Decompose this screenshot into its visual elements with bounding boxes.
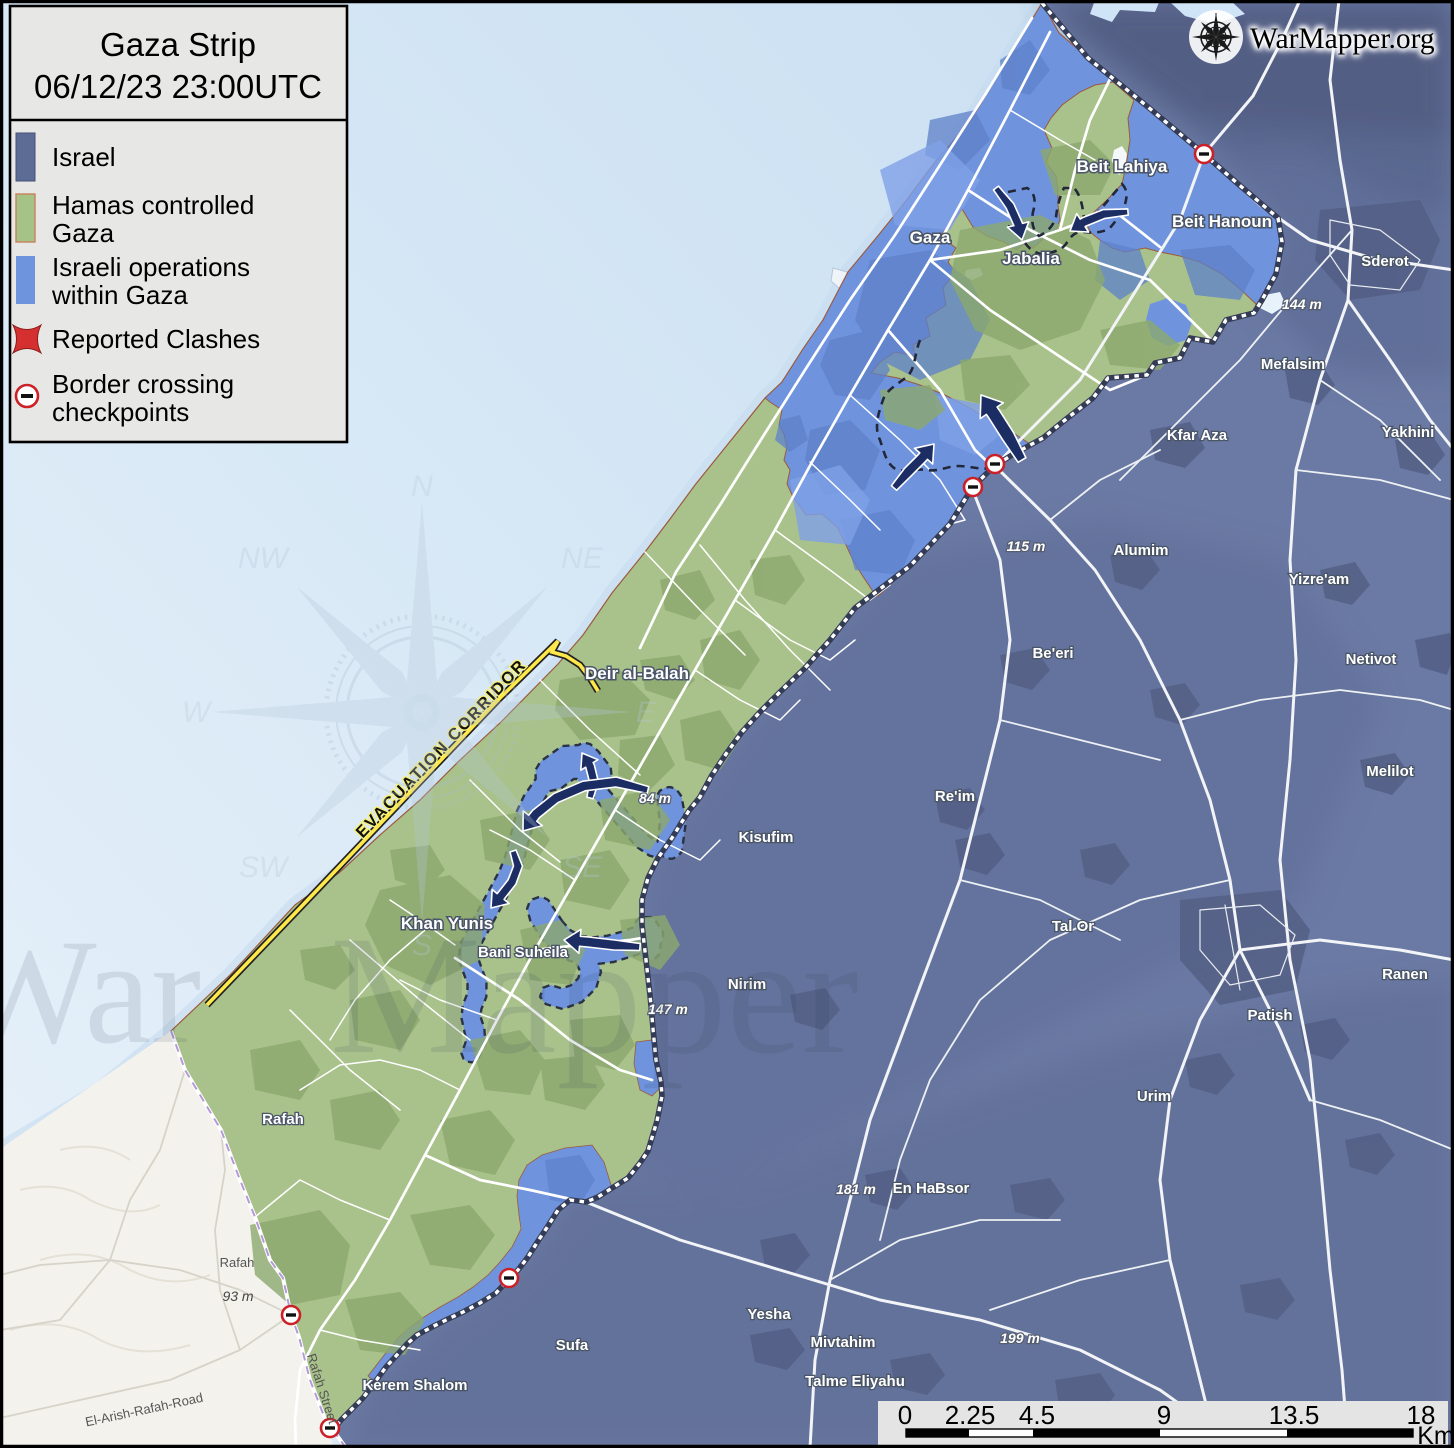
svg-text:Jabalia: Jabalia <box>1002 249 1060 268</box>
svg-text:4.5: 4.5 <box>1019 1400 1055 1430</box>
svg-text:NW: NW <box>238 542 291 575</box>
svg-text:checkpoints: checkpoints <box>52 397 189 427</box>
svg-text:199 m: 199 m <box>1000 1330 1040 1346</box>
svg-text:Gaza: Gaza <box>910 228 951 247</box>
svg-text:Km: Km <box>1417 1422 1454 1448</box>
svg-text:Yakhini: Yakhini <box>1382 424 1435 441</box>
svg-text:Hamas controlled: Hamas controlled <box>52 190 254 220</box>
svg-text:2.25: 2.25 <box>945 1400 996 1430</box>
svg-text:Israeli operations: Israeli operations <box>52 252 250 282</box>
svg-text:W: W <box>182 696 213 729</box>
svg-text:Yizre'am: Yizre'am <box>1289 571 1350 588</box>
svg-text:NE: NE <box>561 542 604 575</box>
svg-text:Ranen: Ranen <box>1382 966 1428 983</box>
svg-text:SW: SW <box>239 851 290 884</box>
svg-text:Deir al-Balah: Deir al-Balah <box>585 664 689 683</box>
svg-text:Netivot: Netivot <box>1346 651 1397 668</box>
svg-text:Gaza Strip: Gaza Strip <box>100 26 256 63</box>
svg-text:Border crossing: Border crossing <box>52 369 234 399</box>
svg-text:Alumim: Alumim <box>1113 542 1168 559</box>
svg-text:Mivtahim: Mivtahim <box>810 1334 875 1351</box>
svg-text:Mefalsim: Mefalsim <box>1261 356 1325 373</box>
svg-text:Kisufim: Kisufim <box>738 829 793 846</box>
svg-text:War: War <box>0 909 201 1075</box>
svg-text:Kfar Aza: Kfar Aza <box>1167 427 1228 444</box>
svg-text:Rafah: Rafah <box>220 1255 255 1270</box>
svg-text:Gaza: Gaza <box>52 218 115 248</box>
svg-text:Sderot: Sderot <box>1361 253 1409 270</box>
svg-text:N: N <box>411 470 433 503</box>
svg-text:9: 9 <box>1157 1400 1171 1430</box>
svg-text:Yesha: Yesha <box>747 1306 791 1323</box>
svg-text:SE: SE <box>562 851 603 884</box>
svg-text:84 m: 84 m <box>639 790 671 806</box>
svg-text:WarMapper.org: WarMapper.org <box>1250 23 1435 55</box>
svg-text:Melilot: Melilot <box>1366 763 1414 780</box>
svg-text:Rafah: Rafah <box>262 1111 304 1128</box>
svg-text:Sufa: Sufa <box>556 1337 589 1354</box>
svg-text:0: 0 <box>898 1400 912 1430</box>
svg-text:Tal Or: Tal Or <box>1052 918 1094 935</box>
svg-text:13.5: 13.5 <box>1269 1400 1320 1430</box>
svg-text:115 m: 115 m <box>1007 538 1046 554</box>
svg-text:Patish: Patish <box>1247 1007 1292 1024</box>
svg-text:Beit Lahiya: Beit Lahiya <box>1077 157 1168 176</box>
svg-text:Kerem Shalom: Kerem Shalom <box>362 1377 467 1394</box>
svg-text:Be'eri: Be'eri <box>1032 645 1073 662</box>
svg-text:S: S <box>412 929 432 962</box>
svg-text:Israel: Israel <box>52 142 116 172</box>
svg-text:181 m: 181 m <box>836 1181 876 1197</box>
svg-text:E: E <box>636 696 657 729</box>
svg-text:En HaBsor: En HaBsor <box>893 1180 970 1197</box>
svg-text:Urim: Urim <box>1137 1088 1171 1105</box>
svg-text:06/12/23 23:00UTC: 06/12/23 23:00UTC <box>34 68 322 105</box>
svg-text:Talme Eliyahu: Talme Eliyahu <box>805 1373 905 1390</box>
svg-text:144 m: 144 m <box>1282 296 1322 312</box>
svg-text:Mapper: Mapper <box>330 901 859 1089</box>
svg-text:Reported Clashes: Reported Clashes <box>52 324 260 354</box>
svg-text:93 m: 93 m <box>222 1288 253 1304</box>
svg-text:Re'im: Re'im <box>935 788 975 805</box>
svg-text:within Gaza: within Gaza <box>51 280 188 310</box>
svg-text:Beit Hanoun: Beit Hanoun <box>1172 212 1272 231</box>
